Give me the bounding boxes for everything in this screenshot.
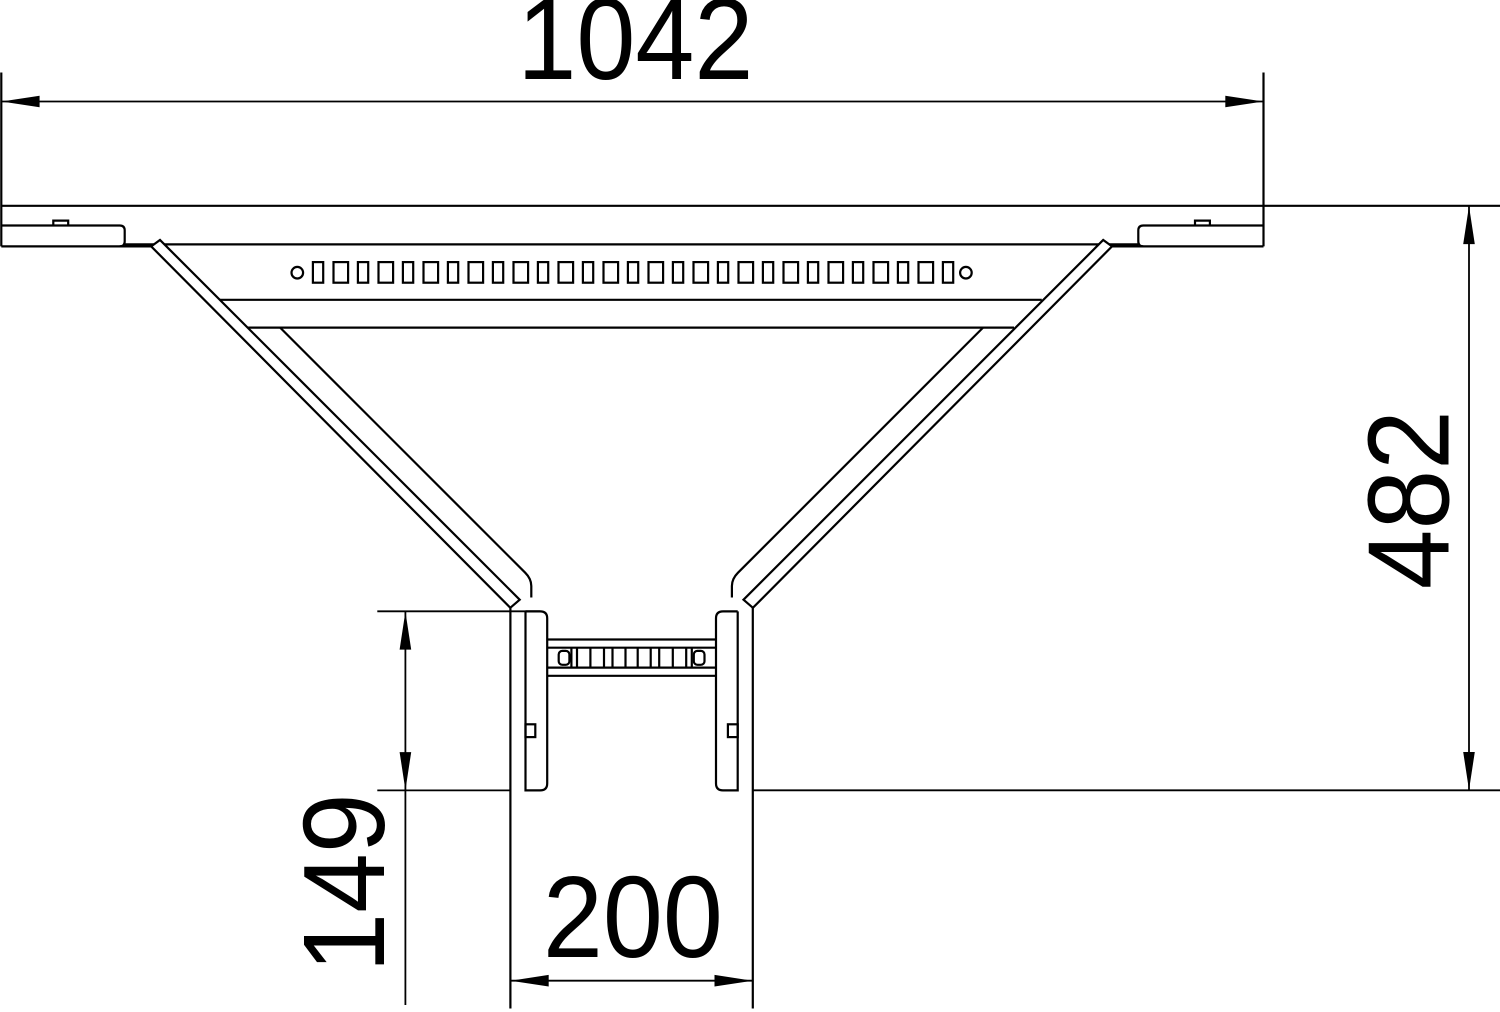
svg-text:482: 482 <box>1344 410 1474 589</box>
svg-text:1042: 1042 <box>517 0 753 104</box>
svg-text:200: 200 <box>543 852 723 982</box>
svg-text:149: 149 <box>279 794 409 973</box>
